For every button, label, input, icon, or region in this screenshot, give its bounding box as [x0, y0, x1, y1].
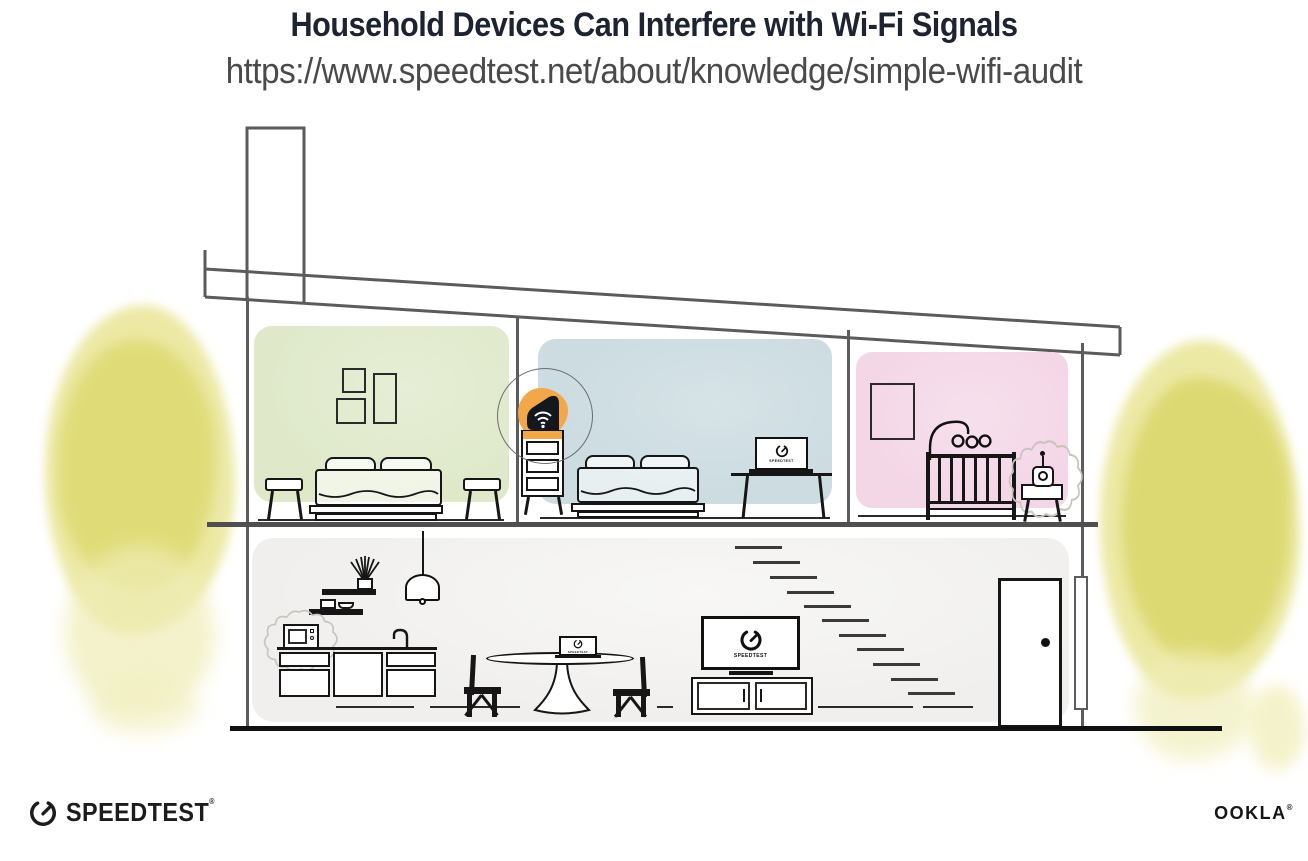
crib-bar — [962, 457, 965, 503]
registered-mark: ® — [209, 797, 215, 806]
stair-step — [753, 561, 800, 564]
dining-chair-seat — [464, 687, 501, 694]
infographic-canvas: Household Devices Can Interfere with Wi-… — [0, 0, 1308, 861]
crib-base — [929, 508, 1013, 510]
speedtest-gauge-icon — [573, 639, 583, 649]
bedroom-laptop-screen: SPEEDTEST — [755, 437, 808, 470]
crib-bar — [938, 457, 941, 503]
pendant-cord — [422, 531, 424, 576]
kitchen-cabinet — [386, 669, 436, 697]
laptop-screen-label: SPEEDTEST — [568, 650, 588, 654]
crib-bar — [998, 457, 1001, 503]
exterior-wall-left — [246, 297, 249, 730]
bedside-stool — [265, 478, 303, 491]
crib-bar — [974, 457, 977, 503]
door-knob-icon — [1041, 638, 1050, 647]
speedtest-logo: SPEEDTEST® — [28, 797, 232, 828]
picture-frame — [336, 398, 366, 424]
console-handle — [743, 689, 745, 702]
sink-faucet — [391, 627, 413, 649]
wall-shelf — [322, 589, 376, 595]
floor-baseline — [923, 706, 973, 708]
floor-baseline — [818, 706, 913, 708]
stair-step — [891, 678, 938, 681]
picture-frame — [342, 368, 366, 393]
dresser-drawer — [526, 477, 559, 491]
kitchen-counter — [277, 647, 437, 650]
tv-screen: SPEEDTEST — [701, 616, 800, 670]
microwave-button — [310, 629, 314, 633]
speedtest-gauge-icon — [28, 798, 58, 828]
picture-frame — [870, 383, 915, 440]
microwave-knob — [310, 636, 314, 640]
speedtest-gauge-icon — [775, 444, 789, 458]
stair-step — [908, 692, 955, 695]
speedtest-gauge-icon — [739, 628, 763, 652]
console-handle — [760, 689, 762, 702]
picture-frame — [373, 373, 397, 424]
microwave-window — [288, 629, 307, 644]
ookla-logo: OOKLA® — [1214, 803, 1294, 824]
front-door — [998, 578, 1062, 728]
stair-step — [822, 619, 869, 622]
floor-baseline — [430, 706, 520, 708]
stair-step — [857, 648, 904, 651]
bed-base — [577, 511, 699, 518]
baby-monitor-lens — [1038, 471, 1048, 481]
stair-step — [770, 576, 817, 579]
crib-bar — [950, 457, 953, 503]
stair-step — [787, 591, 834, 594]
floor-baseline — [336, 706, 414, 708]
downspout — [1074, 576, 1088, 710]
kitchen-cabinet — [279, 669, 330, 697]
stair-step — [873, 663, 920, 666]
stair-step — [735, 546, 782, 549]
stair-step — [804, 605, 851, 608]
registered-mark: ® — [1287, 803, 1294, 812]
bed-base — [315, 513, 437, 521]
dining-chair-seat — [613, 689, 650, 696]
kitchen-drawer — [279, 652, 330, 667]
mattress-wave — [317, 487, 440, 501]
table-pedestal — [531, 660, 593, 718]
mattress-wave — [579, 484, 697, 498]
dining-laptop-screen: SPEEDTEST — [559, 636, 597, 656]
antenna-tip — [1040, 451, 1045, 456]
pendant-lamp — [405, 574, 440, 601]
router-highlight-circle — [497, 368, 593, 464]
interior-wall-2 — [847, 330, 850, 526]
stair-step — [839, 634, 886, 637]
console-door — [755, 682, 807, 710]
speedtest-wordmark: SPEEDTEST® — [66, 797, 215, 828]
lamp-bulb — [419, 598, 426, 605]
ground-line — [230, 726, 1222, 731]
bedside-stool — [463, 478, 501, 491]
chimney — [247, 128, 304, 303]
floor-baseline — [657, 706, 673, 708]
laptop-base — [555, 655, 601, 658]
laptop-screen-label: SPEEDTEST — [769, 459, 793, 463]
kitchen-cabinet — [333, 652, 383, 697]
tv-screen-label: SPEEDTEST — [734, 653, 767, 659]
shelf-bowl — [338, 602, 354, 609]
crib-bar — [986, 457, 989, 503]
floor-slab — [207, 522, 1098, 527]
kitchen-drawer — [386, 652, 436, 667]
tv-stand — [729, 671, 773, 675]
